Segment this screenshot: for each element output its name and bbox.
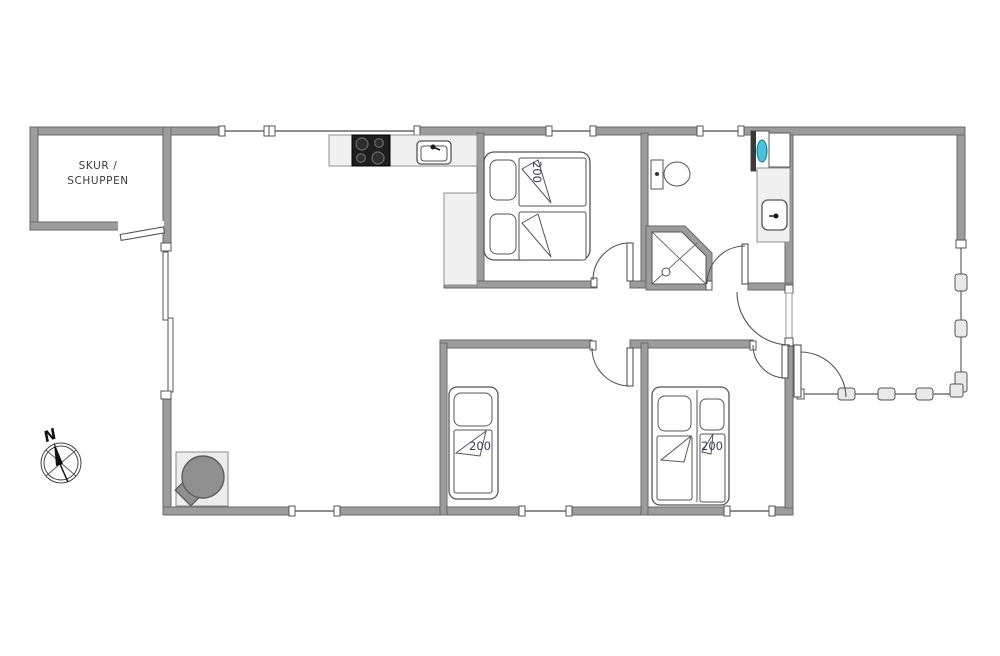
kitchen-sink-icon (417, 141, 451, 164)
compass-rose: N (41, 425, 81, 483)
fence-corner-post (950, 384, 963, 397)
bathroom (646, 131, 790, 290)
shed-label-line1: SKUR / (79, 160, 118, 172)
fence-cap (956, 240, 966, 248)
bed-size-label: 200 (701, 439, 723, 453)
pillow (490, 214, 516, 254)
bedroom1-door (591, 243, 633, 287)
bedroom3-west-wall (440, 343, 447, 515)
corner-shower-icon (646, 226, 712, 290)
fence-post (878, 388, 895, 400)
washbasin-icon (762, 200, 787, 230)
shed-label-line2: SCHUPPEN (67, 175, 129, 187)
fence-post (838, 388, 855, 400)
compass-north-label: N (41, 425, 60, 447)
cooktop-icon (352, 135, 390, 166)
wood-stove-icon (175, 452, 228, 506)
terrace-fence (797, 240, 967, 400)
fence-post (916, 388, 933, 400)
shed-label: SKUR / SCHUPPEN (67, 160, 129, 187)
single-bed-right: 200 (652, 387, 729, 505)
bed-size-label: 200 (469, 439, 491, 453)
water-heater-icon (751, 131, 790, 171)
house-south-wall (163, 507, 793, 515)
kitchen (329, 135, 477, 285)
floor-plan: 200 200 200 (0, 0, 1000, 656)
bedrooms-north-wall-left (440, 340, 592, 348)
fence-post (955, 274, 967, 291)
bedroom2-west-wall (641, 343, 648, 515)
toilet-icon (651, 160, 690, 189)
double-bed: 200 (484, 152, 590, 260)
bedroom2-door (750, 341, 788, 378)
kitchen-counter (329, 135, 477, 166)
pillow (490, 160, 516, 200)
bedroom3-door (590, 341, 633, 386)
bedroom1-south-jamb-wall (630, 281, 648, 288)
pillow (700, 399, 724, 430)
bed-size-label: 200 (530, 161, 544, 183)
pillow (454, 393, 492, 426)
pillow (658, 396, 691, 431)
bedroom1-west-wall (477, 133, 484, 283)
single-bed-left: 200 (449, 387, 498, 499)
fence-post (955, 320, 967, 337)
shed-west-wall (30, 127, 38, 230)
terrace-east-wall (957, 135, 965, 247)
kitchen-tall-cabinet (444, 193, 477, 285)
